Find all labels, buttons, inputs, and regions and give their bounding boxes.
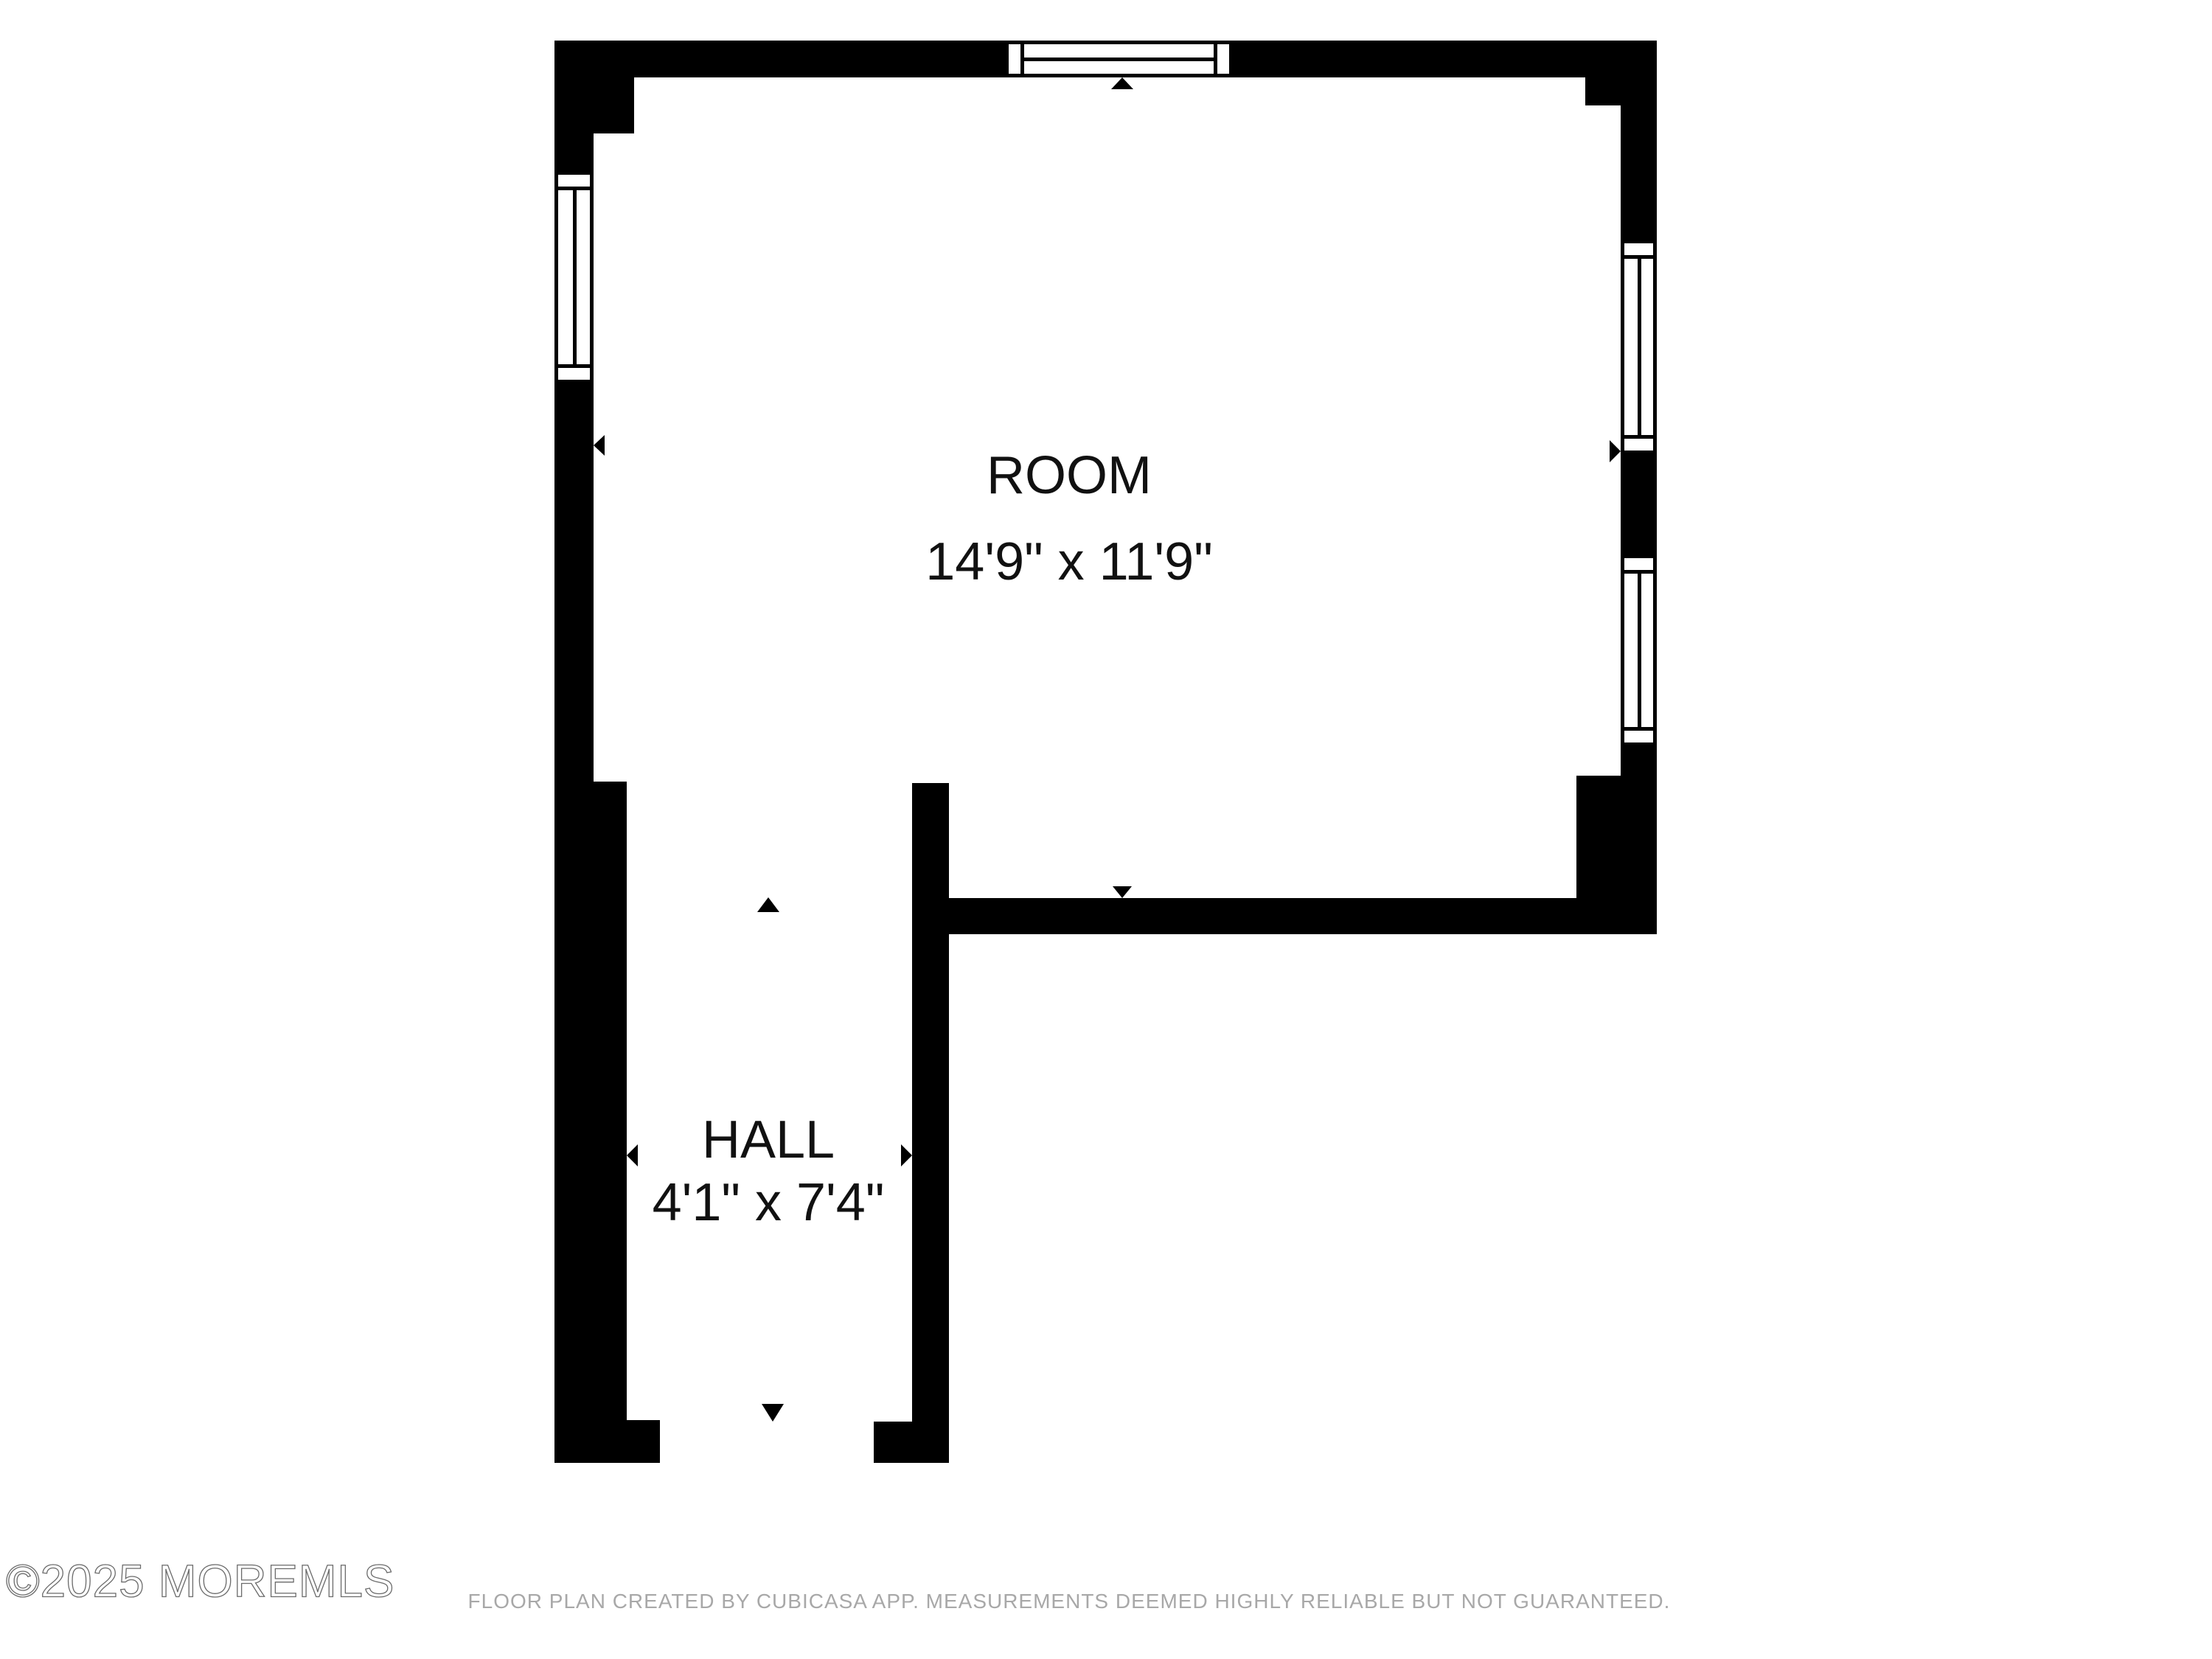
- window-icon: [1621, 240, 1657, 454]
- arrow-up-icon: [757, 897, 779, 912]
- window-cap-line: [1624, 435, 1653, 439]
- arrow-right-icon: [901, 1144, 912, 1166]
- window-cap-line: [558, 364, 590, 368]
- arrow-up-icon: [1111, 77, 1133, 89]
- wall-hall-right-foot: [874, 1422, 912, 1463]
- window-cap-line: [1214, 44, 1217, 74]
- arrow-down-icon: [1113, 886, 1132, 898]
- hall-name-label: HALL: [702, 1110, 835, 1170]
- arrow-right-icon: [1610, 440, 1621, 462]
- window-icon: [1621, 554, 1657, 746]
- wall-hall-left-foot: [627, 1420, 660, 1463]
- window-cap-line: [1624, 727, 1653, 731]
- wall-left-lower: [554, 383, 594, 782]
- arrow-left-icon: [627, 1144, 638, 1166]
- room-dimensions-label: 14'9" x 11'9": [925, 532, 1213, 592]
- window-center-line: [1638, 259, 1641, 435]
- floor-plan-page: ROOM 14'9" x 11'9" HALL 4'1" x 7'4" ©202…: [0, 0, 2212, 1659]
- arrow-left-icon: [594, 435, 605, 456]
- wall-right-upper: [1621, 41, 1657, 240]
- wall-right-lower: [1621, 746, 1657, 934]
- disclaimer-text: FLOOR PLAN CREATED BY CUBICASA APP. MEAS…: [468, 1590, 1671, 1613]
- room-name-label: ROOM: [987, 445, 1152, 506]
- arrow-down-icon: [762, 1404, 784, 1422]
- wall-right-mid: [1621, 454, 1657, 554]
- mls-watermark: ©2025 MOREMLS: [6, 1556, 394, 1608]
- wall-hall-left: [554, 782, 627, 1463]
- window-icon: [554, 171, 594, 383]
- wall-top-left-corner-block: [554, 77, 634, 133]
- wall-hall-right: [912, 783, 949, 1463]
- wall-room-bottom: [949, 898, 1621, 934]
- window-icon: [1005, 41, 1233, 77]
- window-center-line: [1638, 574, 1641, 727]
- wall-top-right-corner-block: [1585, 77, 1657, 105]
- window-center-line: [573, 190, 577, 364]
- wall-bottom-right-corner-block: [1576, 776, 1621, 934]
- window-center-line: [1024, 58, 1214, 61]
- wall-left-upper: [554, 133, 594, 171]
- hall-dimensions-label: 4'1" x 7'4": [653, 1172, 885, 1233]
